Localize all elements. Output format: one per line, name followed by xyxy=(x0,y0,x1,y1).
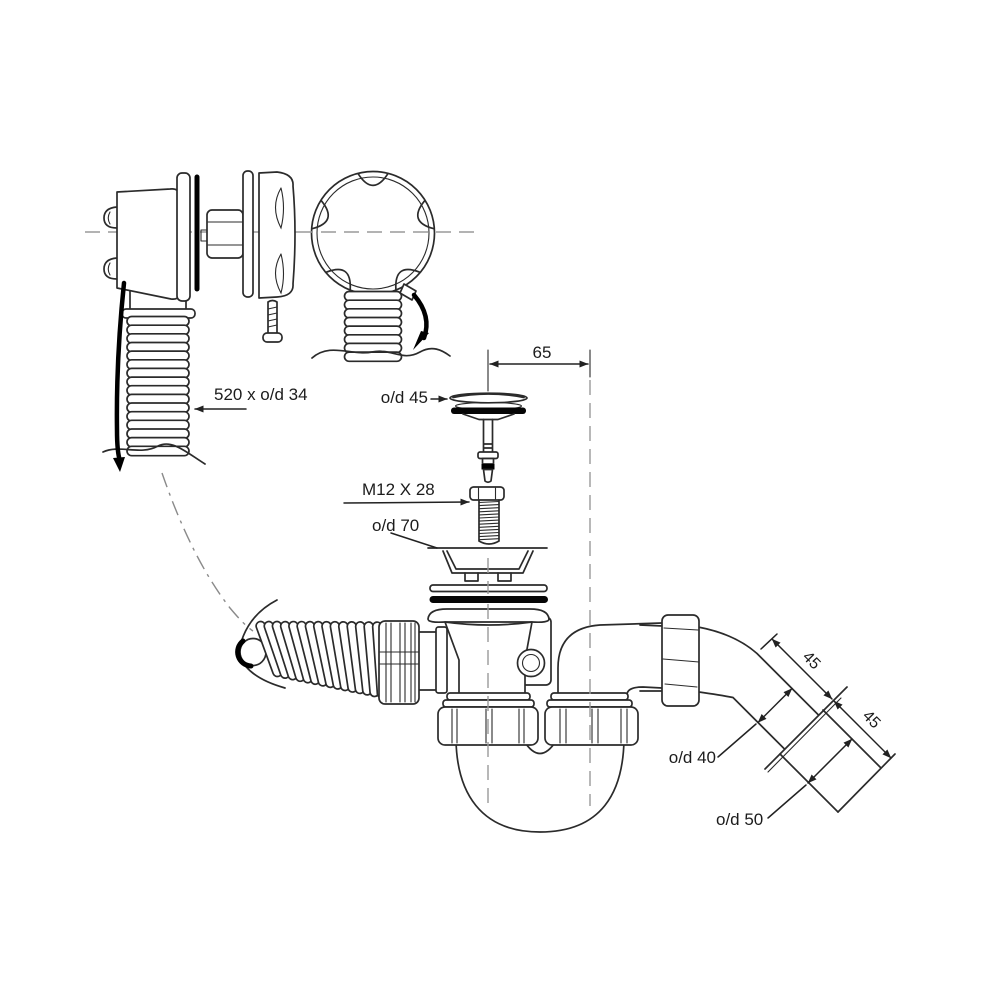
corrugation-ring xyxy=(345,309,402,318)
overflow-body-lugs xyxy=(104,207,117,279)
connector-nut xyxy=(379,621,419,704)
cable-boss-outer xyxy=(518,650,545,677)
label-inlet-od: o/d 40 xyxy=(669,748,716,767)
outlet-thread-collar xyxy=(551,693,628,700)
overflow-body xyxy=(117,189,179,299)
stem-flange xyxy=(478,452,498,459)
label-flange-od: o/d 70 xyxy=(372,516,419,535)
cable-arrowhead xyxy=(413,331,429,350)
control-cable-left xyxy=(117,283,124,461)
lower-hose xyxy=(238,600,387,698)
flange-leader xyxy=(391,533,437,548)
bolt-head xyxy=(470,487,504,500)
plug-cone xyxy=(463,414,514,420)
cable-arrowhead xyxy=(113,457,125,472)
outlet-pipe-upper-edge xyxy=(698,627,819,715)
overflow-washer xyxy=(243,171,253,297)
flange-tabs xyxy=(465,573,511,581)
cover-outer-rim xyxy=(312,172,435,295)
stem-tip xyxy=(484,470,493,483)
plug-stem xyxy=(484,420,493,453)
inlet-od-dim xyxy=(758,689,792,723)
label-socket-od: o/d 50 xyxy=(716,810,763,829)
lug-detail xyxy=(108,212,110,275)
offset-dimension: 65 xyxy=(490,343,590,377)
bolt-shank xyxy=(479,500,499,544)
overflow-screw xyxy=(263,301,282,343)
inlet-od-leader xyxy=(718,724,756,757)
inlet-plate xyxy=(436,627,447,693)
bath-waste-diagram: 520 x o/d 34 xyxy=(0,0,1000,1000)
overflow-nut xyxy=(207,210,243,258)
overflow-body-flange xyxy=(177,173,190,301)
label-bolt-size: M12 X 28 xyxy=(362,480,435,499)
label-offset-dim: 65 xyxy=(533,343,552,362)
trap-and-waste xyxy=(428,609,662,832)
outlet-pipe-lower-edge xyxy=(699,692,785,749)
overflow-cover-plate xyxy=(259,172,295,298)
fixing-bolt xyxy=(470,487,504,544)
corrugation-ring xyxy=(345,292,402,301)
control-cable-front xyxy=(414,295,426,338)
socket-end-face xyxy=(838,754,895,812)
diagram-canvas: 520 x o/d 34 xyxy=(0,0,1000,1000)
overflow-front-view xyxy=(312,172,451,362)
bolt-threads xyxy=(479,502,498,540)
outlet-dimensions: 45 45 o/d 40 o/d 50 xyxy=(669,634,891,829)
pipe-into-nut xyxy=(640,625,663,691)
label-hose-dimension: 520 x o/d 34 xyxy=(214,385,308,404)
hose-route-centerline xyxy=(162,473,253,631)
outlet-elbow-outer xyxy=(558,623,662,695)
plug-seal-ring xyxy=(451,408,526,415)
screw-threads xyxy=(268,307,277,327)
connector-tailpipe xyxy=(418,632,438,690)
screw-head xyxy=(263,333,282,342)
screw-shaft xyxy=(268,301,277,334)
socket-od-leader xyxy=(768,785,806,818)
stem-collar xyxy=(483,459,494,465)
corrugation-ring xyxy=(345,326,402,335)
bolt-arrow xyxy=(344,502,469,503)
rubber-seal xyxy=(430,596,549,603)
socket-od-dim xyxy=(808,739,852,783)
label-plug-od: o/d 45 xyxy=(381,388,428,407)
hose-connector xyxy=(379,621,447,704)
label-socket-length: 45 xyxy=(859,707,884,732)
inlet-length-dim xyxy=(772,639,832,699)
